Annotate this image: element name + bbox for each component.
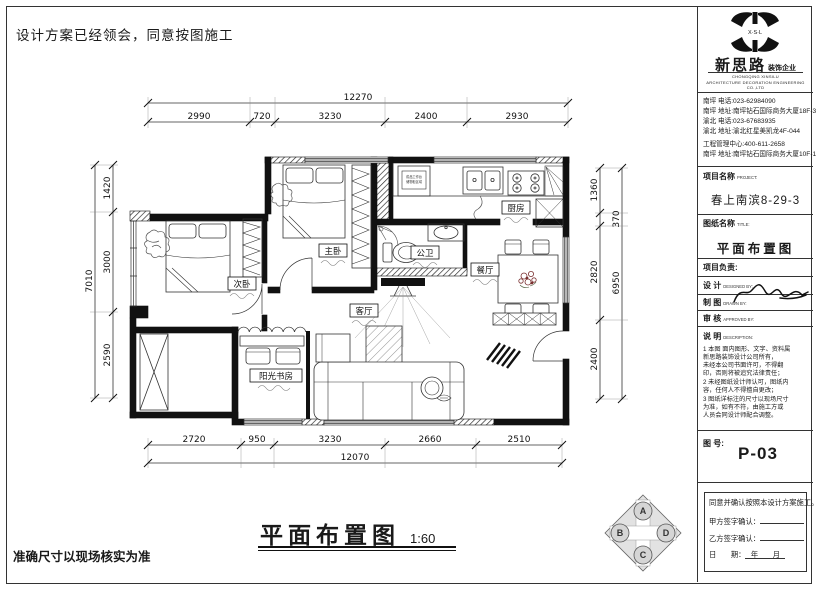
room-label-second: 次卧 <box>228 277 256 299</box>
contact-line: 渝北 电话:023-67683935 <box>703 117 808 127</box>
drawing-sheet: 设计方案已经领会，同意按图施工 12270 2990 720 3230 2400… <box>0 0 818 590</box>
kitchen-fixtures: 成品工作台 储物柜区域 <box>393 163 563 227</box>
dining-set <box>498 240 558 318</box>
storage-closet <box>140 334 168 410</box>
svg-text:2990: 2990 <box>188 112 211 122</box>
entry <box>487 331 563 368</box>
date-row: 日 期：年 月 <box>709 550 785 560</box>
compass-b: B <box>617 528 624 538</box>
company-en-2: ARCHITECTURE DECORATION ENGINEERING CO.,… <box>703 80 808 90</box>
drawing-title-text: 平面布置图 <box>260 522 400 548</box>
accordion-door <box>238 327 306 332</box>
orientation-symbol: A B C D <box>605 495 681 571</box>
svg-text:2510: 2510 <box>508 435 531 445</box>
title-underline-2 <box>258 550 456 551</box>
party-b-row: 乙方签字确认： <box>709 532 804 544</box>
bath-sink <box>428 224 464 241</box>
svg-text:次卧: 次卧 <box>233 279 251 289</box>
floor-plan: 12270 2990 720 3230 2400 2930 2720 950 3… <box>0 0 697 590</box>
cabinet-note-1: 成品工作台 <box>406 174 422 179</box>
title-underline <box>258 546 456 548</box>
compass-d: D <box>663 528 670 538</box>
contact-line: 南坪 电话:023-62984090 <box>703 97 808 107</box>
svg-text:3230: 3230 <box>319 112 342 122</box>
room-label-dining: 餐厅 <box>471 263 499 285</box>
dim-bottom-overall: 12070 <box>341 453 370 463</box>
svg-text:2400: 2400 <box>415 112 438 122</box>
dim-right-overall: 6950 <box>612 271 622 294</box>
compass-a: A <box>640 506 647 516</box>
living-room-furniture <box>314 326 464 420</box>
note-line: 人员会同设计师配合调整。 <box>703 412 808 420</box>
dim-left-overall: 7010 <box>85 269 95 292</box>
chaise <box>316 334 350 362</box>
sheet-number: P-03 <box>738 444 818 464</box>
company-en-1: CHONGQING XINSILU <box>703 74 808 79</box>
room-label-master: 主卧 <box>319 244 347 266</box>
room-label-kitchen: 厨房 <box>502 201 530 223</box>
svg-text:3230: 3230 <box>319 435 342 445</box>
project-label: 项目名称PROJECT: <box>703 171 808 182</box>
party-b-signature-line[interactable] <box>760 532 804 541</box>
party-a-row: 甲方签字确认： <box>709 515 804 527</box>
svg-text:餐厅: 餐厅 <box>476 265 494 275</box>
svg-text:3000: 3000 <box>103 250 113 273</box>
svg-text:客厅: 客厅 <box>355 306 373 316</box>
contact-line: 渝北 地址:渝北红星美凯龙4F-044 <box>703 127 808 137</box>
svg-text:1420: 1420 <box>103 176 113 199</box>
svg-text:公卫: 公卫 <box>416 248 434 258</box>
cabinet-note-2: 储物柜区域 <box>406 179 423 184</box>
svg-text:主卧: 主卧 <box>324 246 342 256</box>
contact-line: 南坪 地址:南坪钻石国际商务大厦10F-1 <box>703 150 808 160</box>
svg-text:2720: 2720 <box>183 435 206 445</box>
confirmation-box: 同意并确认按照本设计方案施工。 甲方签字确认： 乙方签字确认： 日 期：年 月 <box>704 492 807 572</box>
room-label-living: 客厅 <box>350 304 378 326</box>
side-table <box>421 377 443 399</box>
drawing-scale: 1:60 <box>410 531 435 546</box>
svg-text:1360: 1360 <box>590 178 600 201</box>
svg-text:阳光书房: 阳光书房 <box>259 371 293 381</box>
master-door <box>280 258 312 290</box>
room-label-study: 阳光书房 <box>250 369 302 391</box>
note-line: 容，任何人不得擅自更改； <box>703 387 808 395</box>
site-verify-note: 准确尺寸以现场核实为准 <box>13 546 151 565</box>
approved-by-row: 审 核APPROVED BY: <box>703 313 808 324</box>
party-a-signature-line[interactable] <box>760 515 804 524</box>
stove <box>508 171 544 195</box>
svg-text:720: 720 <box>253 112 270 122</box>
date-line[interactable]: 年 月 <box>745 550 785 559</box>
svg-text:2930: 2930 <box>506 112 529 122</box>
description-label: 说 明DESCRIPTION: <box>703 331 808 342</box>
entry-mat <box>487 343 520 368</box>
lead-label: 项目负责: <box>703 262 808 273</box>
desk <box>240 336 304 346</box>
svg-text:厨房: 厨房 <box>507 203 524 213</box>
compass-c: C <box>640 550 647 560</box>
project-name: 春上南滨8-29-3 <box>703 192 808 208</box>
entry-door <box>533 331 563 361</box>
confirm-title: 同意并确认按照本设计方案施工。 <box>709 498 818 508</box>
sheet-name: 平面布置图 <box>703 238 808 257</box>
sheet-label: 图纸名称TITLE: <box>703 218 808 229</box>
note-line: 印，否则将被追究法律责任； <box>703 370 808 378</box>
shoe-cabinet <box>493 313 556 325</box>
svg-text:2820: 2820 <box>590 260 600 283</box>
dim-top-overall: 12270 <box>344 93 373 103</box>
contact-line: 工程管理中心:400-611-2658 <box>703 140 808 150</box>
title-block: X·S·L 新思路 装饰企业 CHONGQING XINSILU ARCHITE… <box>697 6 813 582</box>
svg-text:950: 950 <box>248 435 265 445</box>
drawing-title: 平面布置图1:60 <box>260 516 470 550</box>
svg-text:2660: 2660 <box>419 435 442 445</box>
company-logo: X·S·L <box>725 10 785 54</box>
logo-text: X·S·L <box>748 30 762 36</box>
room-label-bath: 公卫 <box>411 246 439 268</box>
svg-text:2400: 2400 <box>590 347 600 370</box>
second-bedroom-furniture <box>145 219 263 314</box>
designer-signature <box>730 274 810 312</box>
sink <box>463 167 503 219</box>
corner-shelf <box>545 166 563 196</box>
contact-line: 南坪 地址:南坪钻石国际商务大厦18F-3 <box>703 107 808 117</box>
master-bedroom-furniture <box>271 165 371 290</box>
svg-text:370: 370 <box>612 210 622 227</box>
svg-text:2590: 2590 <box>103 343 113 366</box>
